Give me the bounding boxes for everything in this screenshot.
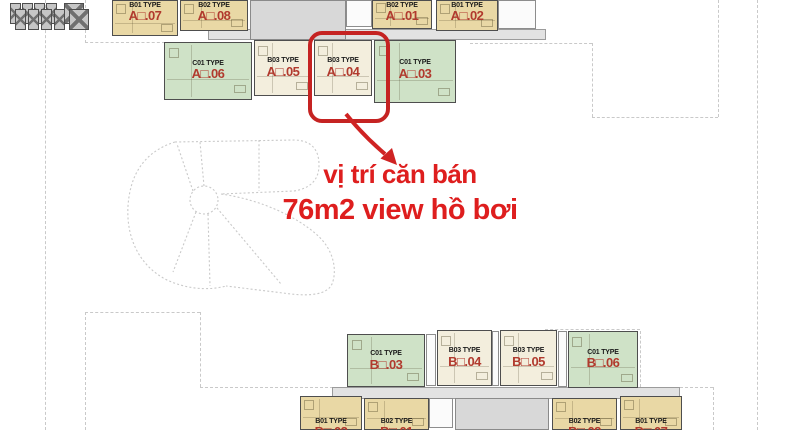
unit-type-label: C01 TYPE (369, 59, 461, 66)
room-divider (518, 333, 519, 383)
furniture-icon (231, 19, 243, 27)
unit-a06: C01 TYPEA□.06 (164, 42, 252, 100)
unit-a01: B02 TYPEA□.01 (372, 0, 432, 29)
utility-room (426, 334, 436, 386)
sale-annotation: vị trí căn bán 76m2 view hồ bơi (240, 159, 560, 227)
site-boundary-dashed-line (592, 117, 718, 118)
furniture-icon (476, 372, 488, 380)
unit-number-label: B□.01 (359, 425, 434, 430)
room-divider (454, 333, 455, 383)
room-divider (571, 367, 635, 368)
room-divider (319, 399, 320, 427)
room-divider (201, 3, 202, 28)
room-divider (390, 3, 391, 26)
furniture-icon (345, 418, 357, 426)
site-boundary-dashed-line (718, 0, 719, 117)
unit-type-label: B03 TYPE (432, 347, 497, 354)
room-divider (167, 79, 249, 80)
site-boundary-dashed-line (85, 312, 200, 313)
unit-b02: B01 TYPEB□.02 (300, 396, 362, 430)
furniture-icon (234, 85, 246, 93)
unit-b05: B03 TYPEB□.05 (500, 330, 557, 386)
unit-b04: B03 TYPEB□.04 (437, 330, 492, 386)
unit-type-label: B03 TYPE (495, 347, 562, 354)
furniture-icon (440, 4, 450, 14)
lift-core (455, 398, 549, 430)
room-divider (503, 366, 554, 367)
room-divider (639, 399, 640, 427)
furniture-icon (600, 418, 612, 426)
furniture-icon (368, 402, 378, 412)
room-divider (572, 401, 573, 427)
unit-number-label: A□.03 (369, 67, 461, 81)
room-divider (257, 76, 309, 77)
site-boundary-dashed-line (85, 312, 86, 430)
furniture-icon (376, 3, 386, 13)
unit-number-label: B□.07 (615, 425, 687, 430)
furniture-icon (556, 402, 566, 412)
room-divider (589, 334, 590, 385)
lift-shaft-icon (28, 9, 39, 30)
furniture-icon (379, 46, 389, 56)
site-boundary-dashed-line (200, 312, 201, 387)
unit-number-label: B□.03 (342, 358, 430, 372)
unit-b07: B01 TYPEB□.07 (620, 396, 682, 430)
room-divider (332, 43, 333, 93)
room-divider (377, 80, 453, 81)
floorplan-canvas: LIFT LOBBYLIFT LOBBYB01 TYPEA□.07B02 TYP… (0, 0, 810, 430)
furniture-icon (412, 418, 424, 426)
unit-number-label: B□.08 (547, 425, 622, 430)
lift-shaft-icon (69, 9, 89, 30)
unit-b03: C01 TYPEB□.03 (347, 334, 425, 387)
unit-type-label: B03 TYPE (249, 57, 317, 64)
unit-a02: B01 TYPEA□.02 (436, 0, 498, 31)
room-divider (350, 368, 422, 369)
furniture-icon (504, 336, 514, 346)
room-divider (440, 366, 489, 367)
furniture-icon (184, 4, 194, 14)
room-divider (399, 43, 400, 100)
annotation-line1: vị trí căn bán (240, 159, 560, 190)
unit-label: C01 TYPEA□.06 (159, 60, 257, 81)
unit-b01: B02 TYPEB□.01 (364, 398, 429, 430)
furniture-icon (572, 337, 582, 347)
furniture-icon (416, 17, 428, 25)
furniture-icon (438, 88, 450, 96)
site-boundary-dashed-line (545, 329, 640, 330)
furniture-icon (352, 340, 362, 350)
furniture-icon (481, 19, 493, 27)
furniture-icon (541, 372, 553, 380)
room-divider (371, 337, 372, 384)
site-boundary-dashed-line (757, 0, 758, 430)
unit-a03: C01 TYPEA□.03 (374, 40, 456, 103)
room-divider (317, 76, 369, 77)
furniture-icon (296, 82, 308, 90)
unit-type-label: C01 TYPE (159, 60, 257, 67)
furniture-icon (169, 48, 179, 58)
unit-label: C01 TYPEA□.03 (369, 59, 461, 80)
unit-b06: C01 TYPEB□.06 (568, 331, 638, 388)
site-boundary-dashed-line (470, 43, 592, 44)
furniture-icon (407, 373, 419, 381)
unit-number-label: B□.02 (295, 425, 367, 430)
unit-a08: B02 TYPEA□.08 (180, 0, 248, 31)
room-divider (132, 3, 133, 33)
site-boundary-dashed-line (640, 331, 641, 387)
furniture-icon (161, 24, 173, 32)
site-boundary-dashed-line (592, 43, 593, 117)
furniture-icon (441, 336, 451, 346)
lift-shaft-icon (15, 9, 26, 30)
furniture-icon (304, 400, 314, 410)
room-divider (191, 45, 192, 97)
room-divider (384, 401, 385, 427)
furniture-icon (624, 400, 634, 410)
site-boundary-dashed-line (200, 387, 348, 388)
site-boundary-dashed-line (45, 0, 46, 430)
room-divider (272, 43, 273, 93)
unit-b08: B02 TYPEB□.08 (552, 398, 617, 430)
lift-shaft-icon (54, 9, 65, 30)
unit-type-label: C01 TYPE (342, 350, 430, 357)
utility-room (558, 331, 567, 387)
unit-a05: B03 TYPEA□.05 (254, 40, 312, 96)
furniture-icon (665, 418, 677, 426)
lift-shaft-icon (41, 9, 52, 30)
unit-a04: B03 TYPEA□.04 (314, 40, 372, 96)
furniture-icon (621, 374, 633, 382)
room-divider (455, 3, 456, 28)
furniture-icon (318, 46, 328, 56)
furniture-icon (116, 4, 126, 14)
unit-a07: B01 TYPEA□.07 (112, 0, 178, 36)
annotation-line2: 76m2 view hồ bơi (240, 194, 560, 227)
site-boundary-dashed-line (85, 42, 165, 43)
utility-room (492, 331, 499, 386)
furniture-icon (258, 46, 268, 56)
furniture-icon (356, 82, 368, 90)
unit-type-label: B03 TYPE (309, 57, 377, 64)
unit-type-label: C01 TYPE (563, 349, 643, 356)
